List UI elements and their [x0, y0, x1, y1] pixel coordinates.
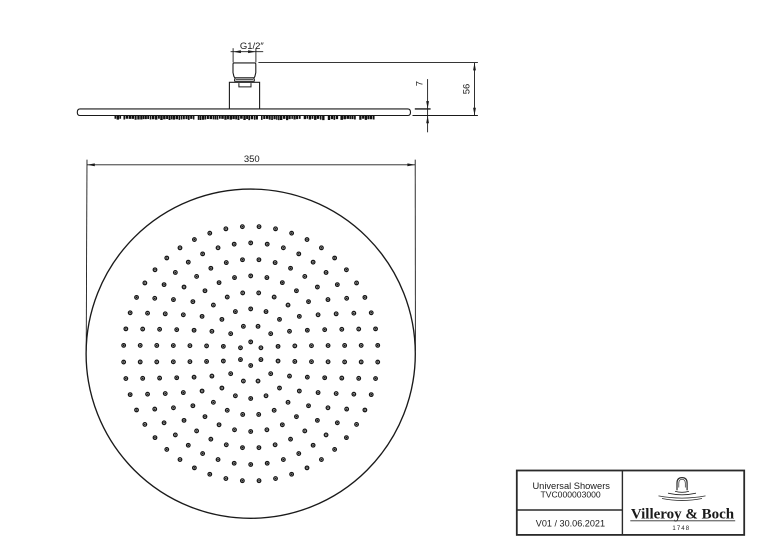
- svg-text:TVC000003000: TVC000003000: [540, 490, 600, 500]
- svg-text:1748: 1748: [672, 526, 690, 532]
- svg-text:56: 56: [461, 84, 472, 95]
- svg-text:G1/2″: G1/2″: [240, 41, 265, 52]
- svg-text:V01 / 30.06.2021: V01 / 30.06.2021: [536, 519, 605, 529]
- svg-text:7: 7: [414, 81, 425, 86]
- svg-text:350: 350: [244, 154, 260, 165]
- svg-text:Villeroy & Boch: Villeroy & Boch: [631, 506, 735, 522]
